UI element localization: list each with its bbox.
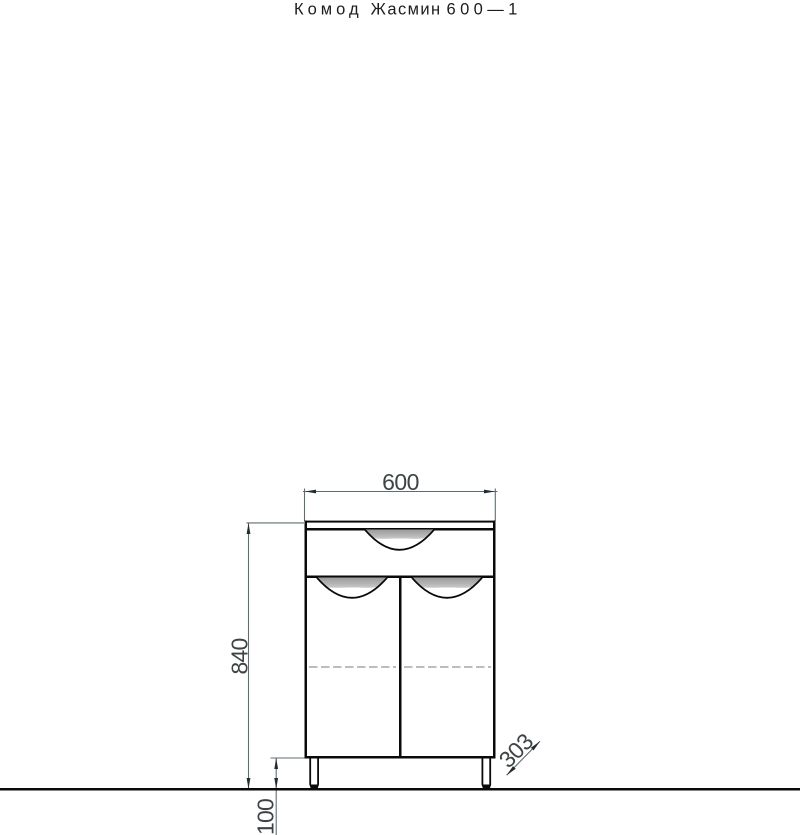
svg-text:840: 840 [227,639,253,675]
svg-text:КомодЖасмин600—1: КомодЖасмин600—1 [294,1,522,19]
svg-text:600: 600 [382,469,419,495]
svg-text:100: 100 [253,799,279,835]
